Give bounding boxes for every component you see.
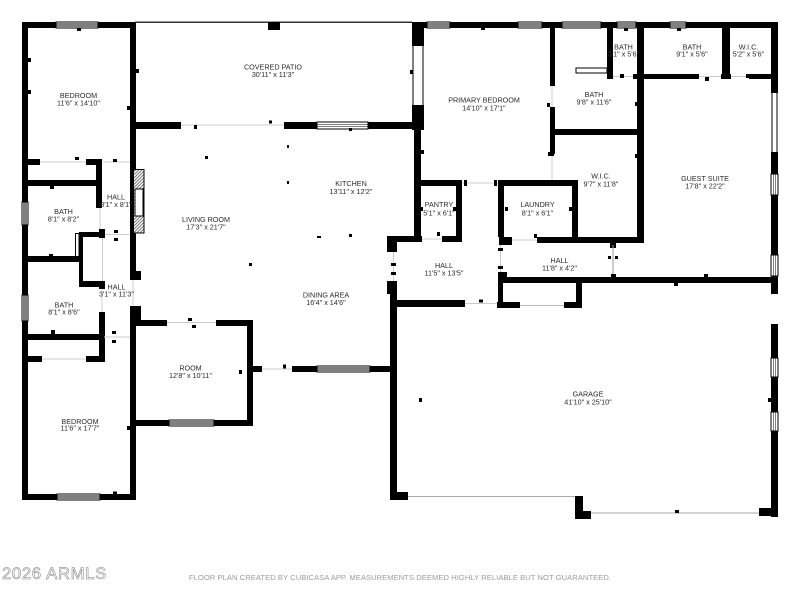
svg-text:14'10" x 17'1": 14'10" x 17'1"	[462, 104, 506, 113]
svg-text:11'5" x 13'5": 11'5" x 13'5"	[425, 269, 464, 278]
svg-text:17'3" x 21'7": 17'3" x 21'7"	[186, 223, 226, 232]
svg-text:30'11" x 11'3": 30'11" x 11'3"	[252, 70, 295, 79]
svg-text:11'6" x 17'7": 11'6" x 17'7"	[61, 424, 100, 433]
svg-text:12'8" x 10'11": 12'8" x 10'11"	[169, 371, 212, 380]
svg-text:11'8" x 4'2": 11'8" x 4'2"	[542, 264, 577, 273]
svg-text:5'1" x 6'1": 5'1" x 6'1"	[423, 209, 455, 218]
svg-text:13'11" x 12'2": 13'11" x 12'2"	[330, 187, 373, 196]
svg-text:41'10" x 25'10": 41'10" x 25'10"	[564, 398, 612, 407]
svg-text:3'1" x 11'3": 3'1" x 11'3"	[99, 290, 134, 299]
svg-text:FLOOR PLAN CREATED BY CUBICASA: FLOOR PLAN CREATED BY CUBICASA APP. MEAS…	[189, 573, 611, 582]
svg-text:9'7" x 11'8": 9'7" x 11'8"	[584, 180, 619, 189]
svg-text:11'6" x 14'10": 11'6" x 14'10"	[57, 99, 100, 108]
svg-text:8'1" x 6'1": 8'1" x 6'1"	[522, 209, 554, 218]
svg-text:3'1" x 5'6": 3'1" x 5'6"	[608, 50, 640, 59]
svg-text:8'1" x 8'6": 8'1" x 8'6"	[48, 308, 80, 317]
svg-text:8'1" x 8'1": 8'1" x 8'1"	[100, 200, 132, 209]
svg-text:9'8" x 11'6": 9'8" x 11'6"	[577, 98, 612, 107]
svg-text:2026 ARMLS: 2026 ARMLS	[2, 564, 107, 583]
svg-text:17'8" x 22'2": 17'8" x 22'2"	[685, 182, 725, 191]
svg-text:5'2" x 5'6": 5'2" x 5'6"	[733, 50, 765, 59]
svg-text:8'1" x 8'2": 8'1" x 8'2"	[48, 215, 80, 224]
svg-text:16'4" x 14'6": 16'4" x 14'6"	[306, 298, 346, 307]
svg-text:9'1" x 5'6": 9'1" x 5'6"	[676, 50, 708, 59]
